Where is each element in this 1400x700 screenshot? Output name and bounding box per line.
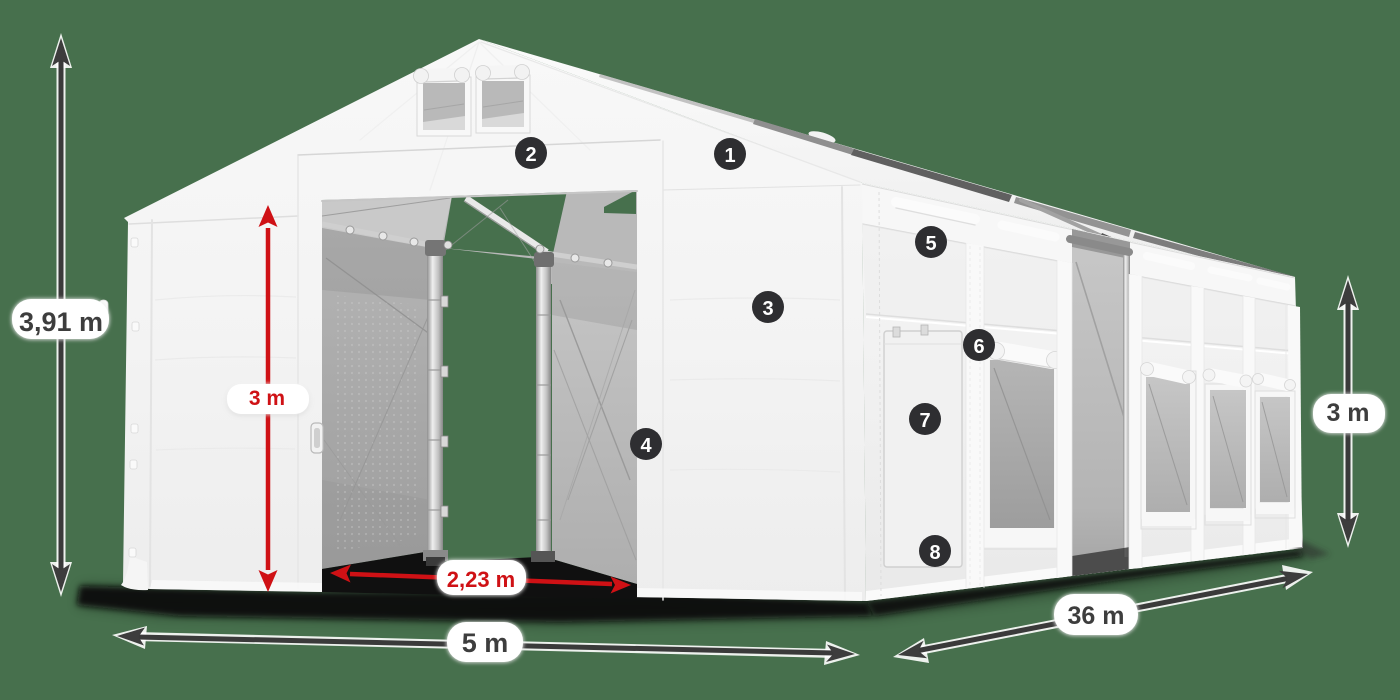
svg-text:36 m: 36 m [1068,602,1125,630]
svg-text:3: 3 [762,298,773,320]
svg-text:2,23 m: 2,23 m [447,567,516,592]
svg-text:2: 2 [525,144,536,166]
svg-text:3,91 m: 3,91 m [19,307,103,337]
svg-text:4: 4 [640,435,652,457]
svg-text:1: 1 [724,145,735,167]
svg-text:5 m: 5 m [462,628,509,658]
svg-text:7: 7 [919,410,930,432]
svg-text:3 m: 3 m [1326,399,1369,427]
svg-text:8: 8 [929,542,940,564]
svg-text:5: 5 [925,233,936,255]
svg-text:6: 6 [973,336,984,358]
svg-text:3 m: 3 m [249,387,285,410]
